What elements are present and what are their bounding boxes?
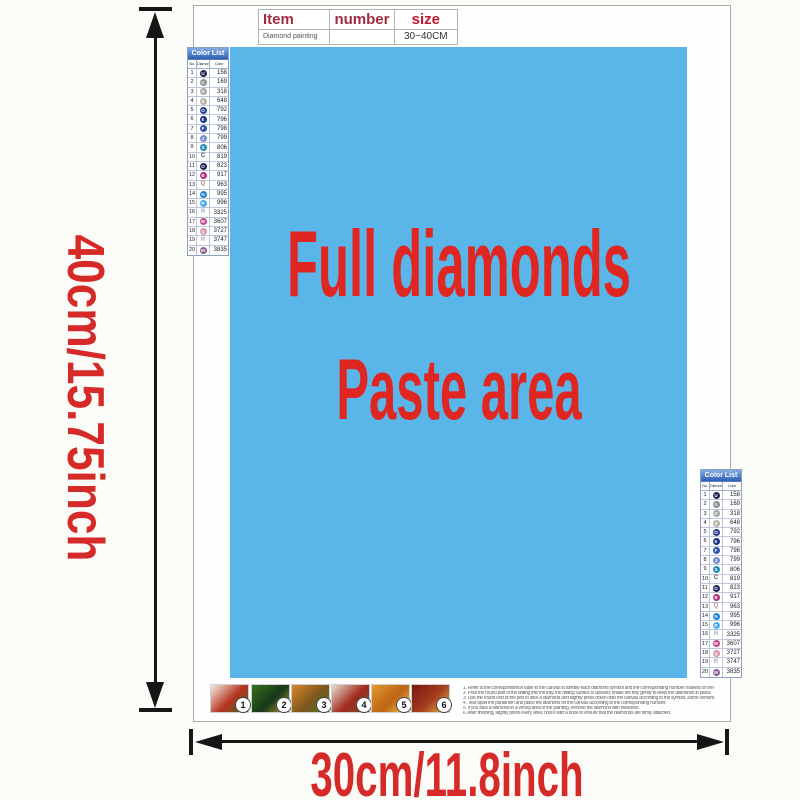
row-number: 16 (188, 208, 197, 216)
item-table-header-row: Item number size (259, 10, 457, 30)
dmc-color-code: 823 (210, 163, 228, 169)
color-list-row: 20M3835 (188, 246, 228, 255)
dmc-color-code: 799 (723, 557, 741, 563)
diamond-symbol-icon: O (710, 528, 723, 536)
dmc-color-code: 823 (723, 585, 741, 591)
row-number: 13 (188, 181, 197, 189)
diamond-symbol-icon: O (710, 584, 723, 592)
diamond-symbol-icon: B (710, 593, 723, 601)
row-number: 3 (188, 88, 197, 96)
diamond-symbol-icon: C (710, 575, 723, 583)
dmc-color-code: 799 (210, 135, 228, 141)
diamond-symbol-icon: R (710, 630, 723, 638)
diamond-symbol-icon: U (197, 69, 210, 77)
dmc-color-code: 3325 (210, 210, 228, 216)
color-list-row: 10C819 (701, 575, 741, 584)
row-number: 6 (188, 115, 197, 123)
color-list-row: 14N995 (701, 612, 741, 621)
dmc-color-code: 3747 (723, 659, 741, 665)
row-number: 13 (701, 603, 710, 611)
col-color-label: Color (723, 482, 741, 490)
col-no-label: No. (701, 482, 710, 490)
diamond-symbol-icon: R (197, 236, 210, 244)
step-thumbnail-5: 5 (371, 684, 410, 713)
row-number: 8 (701, 556, 710, 564)
dmc-color-code: 806 (210, 145, 228, 151)
arrow-left-cap (189, 729, 193, 755)
color-list-row: 16R3325 (188, 208, 228, 217)
color-list-row: 8J799 (701, 556, 741, 565)
dmc-color-code: 995 (723, 613, 741, 619)
dmc-color-code: 3727 (723, 650, 741, 656)
color-list-row: 3D318 (701, 510, 741, 519)
dmc-color-code: 158 (210, 70, 228, 76)
color-list-row: 2G169 (188, 78, 228, 87)
arrow-right-head (697, 734, 724, 750)
dmc-color-code: 796 (210, 117, 228, 123)
row-number: 19 (701, 658, 710, 666)
row-number: 20 (188, 246, 197, 255)
arrow-left-head (195, 734, 222, 750)
row-number: 9 (701, 565, 710, 573)
number-header-cell: number (330, 10, 394, 29)
col-no-label: No. (188, 60, 197, 68)
diamond-symbol-icon: G (710, 500, 723, 508)
dmc-color-code: 806 (723, 567, 741, 573)
row-number: 3 (701, 510, 710, 518)
dmc-color-code: 3607 (723, 641, 741, 647)
color-list-right-title: Color List (701, 470, 741, 482)
color-list-row: 7F798 (188, 125, 228, 134)
row-number: 15 (188, 199, 197, 207)
dmc-color-code: 648 (210, 98, 228, 104)
diamond-symbol-icon: N (710, 612, 723, 620)
color-list-row: 20M3835 (701, 668, 741, 677)
color-list-row: 15P996 (701, 621, 741, 630)
color-list-row: 5O792 (188, 106, 228, 115)
row-number: 10 (188, 153, 197, 161)
diamond-symbol-icon: G (197, 78, 210, 86)
row-number: 7 (188, 125, 197, 133)
color-list-row: 18Q3727 (701, 649, 741, 658)
color-list-row: 19R3747 (701, 658, 741, 667)
color-list-row: 1U158 (701, 491, 741, 500)
arrow-down-head (146, 682, 164, 708)
item-table-data-row: Diamond painting 30~40CM (259, 30, 457, 44)
row-number: 17 (701, 640, 710, 648)
color-list-row: 18Q3727 (188, 227, 228, 236)
dmc-color-code: 917 (210, 172, 228, 178)
row-number: 10 (701, 575, 710, 583)
paste-area-title-line1: Full diamonds (286, 217, 630, 311)
item-header-cell: Item (259, 10, 330, 29)
color-list-row: 5O792 (701, 528, 741, 537)
color-list-row: 10C819 (188, 153, 228, 162)
diamond-symbol-icon: D (197, 88, 210, 96)
row-number: 15 (701, 621, 710, 629)
diamond-symbol-icon: O (197, 162, 210, 170)
dmc-color-code: 995 (210, 191, 228, 197)
color-list-left-body: 1U1582G1693D3184d6485O7926E7967F7988J799… (188, 69, 228, 255)
dmc-color-code: 917 (723, 594, 741, 600)
row-number: 16 (701, 630, 710, 638)
dmc-color-code: 996 (723, 622, 741, 628)
diamond-symbol-icon: S (197, 143, 210, 151)
color-list-left-columns: No. Diamond Color (188, 60, 228, 69)
row-number: 11 (701, 584, 710, 592)
dmc-color-code: 318 (210, 89, 228, 95)
paste-area: Full diamonds Paste area (230, 47, 687, 678)
row-number: 5 (188, 106, 197, 114)
row-number: 19 (188, 236, 197, 244)
color-list-row: 16R3325 (701, 630, 741, 639)
dmc-color-code: 792 (210, 107, 228, 113)
diamond-symbol-icon: M (197, 246, 210, 255)
color-list-row: 4d648 (701, 519, 741, 528)
item-value-cell: Diamond painting (259, 30, 330, 44)
diamond-symbol-icon: F (710, 547, 723, 555)
color-list-row: 3D318 (188, 88, 228, 97)
width-dimension-label: 30cm/11.8inch (310, 745, 583, 800)
dmc-color-code: 158 (723, 492, 741, 498)
diamond-symbol-icon: Q (197, 227, 210, 235)
color-list-row: 1U158 (188, 69, 228, 78)
diamond-symbol-icon: N (197, 190, 210, 198)
step-number-badge: 6 (436, 697, 452, 713)
row-number: 14 (188, 190, 197, 198)
size-value-cell: 30~40CM (395, 30, 457, 44)
arrow-bottom-cap (139, 708, 172, 712)
step-number-badge: 3 (316, 697, 332, 713)
step-thumbnail-2: 2 (251, 684, 290, 713)
dmc-color-code: 169 (723, 501, 741, 507)
instruction-text-block: 1. Refer to the correspondence table to … (463, 686, 715, 715)
color-list-row: 12B917 (701, 593, 741, 602)
row-number: 9 (188, 143, 197, 151)
color-list-right-columns: No. Diamond Color (701, 482, 741, 491)
diamond-symbol-icon: Q (710, 649, 723, 657)
color-list-row: 4d648 (188, 97, 228, 106)
color-list-row: 9S806 (188, 143, 228, 152)
dmc-color-code: 798 (723, 548, 741, 554)
arrow-top-cap (139, 7, 172, 11)
color-list-right-body: 1U1582G1693D3184d6485O7926E7967F7988J799… (701, 491, 741, 677)
dmc-color-code: 798 (210, 126, 228, 132)
row-number: 11 (188, 162, 197, 170)
diamond-symbol-icon: M (710, 668, 723, 677)
step-number-badge: 4 (356, 697, 372, 713)
diamond-symbol-icon: Q (710, 603, 723, 611)
row-number: 4 (701, 519, 710, 527)
dmc-color-code: 996 (210, 200, 228, 206)
color-list-row: 12B917 (188, 171, 228, 180)
dmc-color-code: 792 (723, 529, 741, 535)
color-list-row: 13Q963 (701, 603, 741, 612)
dmc-color-code: 3607 (210, 219, 228, 225)
height-dimension-label: 40cm/15.75inch (59, 235, 111, 562)
step-thumbnail-3: 3 (291, 684, 330, 713)
col-color-label: Color (210, 60, 228, 68)
color-list-row: 19R3747 (188, 236, 228, 245)
arrow-vertical-shaft (154, 32, 157, 684)
color-list-row: 17W3607 (188, 218, 228, 227)
dmc-color-code: 169 (210, 79, 228, 85)
diamond-symbol-icon: E (197, 115, 210, 123)
number-value-cell (330, 30, 394, 44)
color-list-row: 9S806 (701, 565, 741, 574)
dmc-color-code: 648 (723, 520, 741, 526)
color-list-row: 15P996 (188, 199, 228, 208)
color-list-row: 7F798 (701, 547, 741, 556)
row-number: 7 (701, 547, 710, 555)
color-list-row: 8J799 (188, 134, 228, 143)
row-number: 1 (701, 491, 710, 499)
diamond-symbol-icon: O (197, 106, 210, 114)
color-list-row: 11O823 (701, 584, 741, 593)
step-number-badge: 1 (235, 697, 251, 713)
step-thumbnail-6: 6 (411, 684, 450, 713)
diamond-symbol-icon: B (197, 171, 210, 179)
row-number: 12 (188, 171, 197, 179)
size-header-cell: size (395, 10, 457, 29)
item-info-table: Item number size Diamond painting 30~40C… (258, 9, 458, 45)
row-number: 2 (188, 78, 197, 86)
dmc-color-code: 963 (210, 182, 228, 188)
color-list-row: 11O823 (188, 162, 228, 171)
color-list-right: Color List No. Diamond Color 1U1582G1693… (700, 469, 742, 678)
diamond-symbol-icon: d (710, 519, 723, 527)
diamond-symbol-icon: R (197, 208, 210, 216)
diamond-symbol-icon: P (710, 621, 723, 629)
color-list-row: 13Q963 (188, 181, 228, 190)
col-diamond-label: Diamond (197, 60, 210, 68)
color-list-row: 17W3607 (701, 640, 741, 649)
dmc-color-code: 318 (723, 511, 741, 517)
col-diamond-label: Diamond (710, 482, 723, 490)
color-list-row: 14N995 (188, 190, 228, 199)
color-list-left: Color List No. Diamond Color 1U1582G1693… (187, 47, 229, 256)
dmc-color-code: 963 (723, 604, 741, 610)
diamond-symbol-icon: W (710, 640, 723, 648)
dmc-color-code: 3747 (210, 237, 228, 243)
dmc-color-code: 3835 (723, 669, 741, 675)
diamond-symbol-icon: F (197, 125, 210, 133)
diamond-symbol-icon: W (197, 218, 210, 226)
row-number: 1 (188, 69, 197, 77)
row-number: 18 (701, 649, 710, 657)
dmc-color-code: 3727 (210, 228, 228, 234)
diamond-symbol-icon: C (197, 153, 210, 161)
diamond-symbol-icon: U (710, 491, 723, 499)
row-number: 14 (701, 612, 710, 620)
row-number: 6 (701, 537, 710, 545)
row-number: 18 (188, 227, 197, 235)
diamond-symbol-icon: E (710, 537, 723, 545)
product-image: Full diamonds Paste area Item number siz… (0, 0, 800, 800)
diamond-symbol-icon: R (710, 658, 723, 666)
step-thumbnail-1: 1 (210, 684, 249, 713)
diamond-symbol-icon: P (197, 199, 210, 207)
paste-area-title-line2: Paste area (336, 347, 581, 433)
dmc-color-code: 3835 (210, 247, 228, 253)
diamond-symbol-icon: S (710, 565, 723, 573)
dmc-color-code: 819 (723, 576, 741, 582)
row-number: 17 (188, 218, 197, 226)
arrow-right-cap (725, 729, 729, 755)
row-number: 2 (701, 500, 710, 508)
step-number-badge: 2 (276, 697, 292, 713)
step-thumbnail-4: 4 (331, 684, 370, 713)
diamond-symbol-icon: Q (197, 181, 210, 189)
diamond-symbol-icon: d (197, 97, 210, 105)
row-number: 4 (188, 97, 197, 105)
row-number: 20 (701, 668, 710, 677)
row-number: 12 (701, 593, 710, 601)
row-number: 8 (188, 134, 197, 142)
color-list-left-title: Color List (188, 48, 228, 60)
dmc-color-code: 819 (210, 154, 228, 160)
color-list-row: 6E796 (188, 115, 228, 124)
dmc-color-code: 796 (723, 539, 741, 545)
dmc-color-code: 3325 (723, 632, 741, 638)
diamond-symbol-icon: J (710, 556, 723, 564)
diamond-symbol-icon: D (710, 510, 723, 518)
color-list-row: 6E796 (701, 537, 741, 546)
step-number-badge: 5 (396, 697, 412, 713)
instruction-line: 6. After finishing, slightly press every… (463, 711, 715, 716)
color-list-row: 2G169 (701, 500, 741, 509)
row-number: 5 (701, 528, 710, 536)
diamond-symbol-icon: J (197, 134, 210, 142)
